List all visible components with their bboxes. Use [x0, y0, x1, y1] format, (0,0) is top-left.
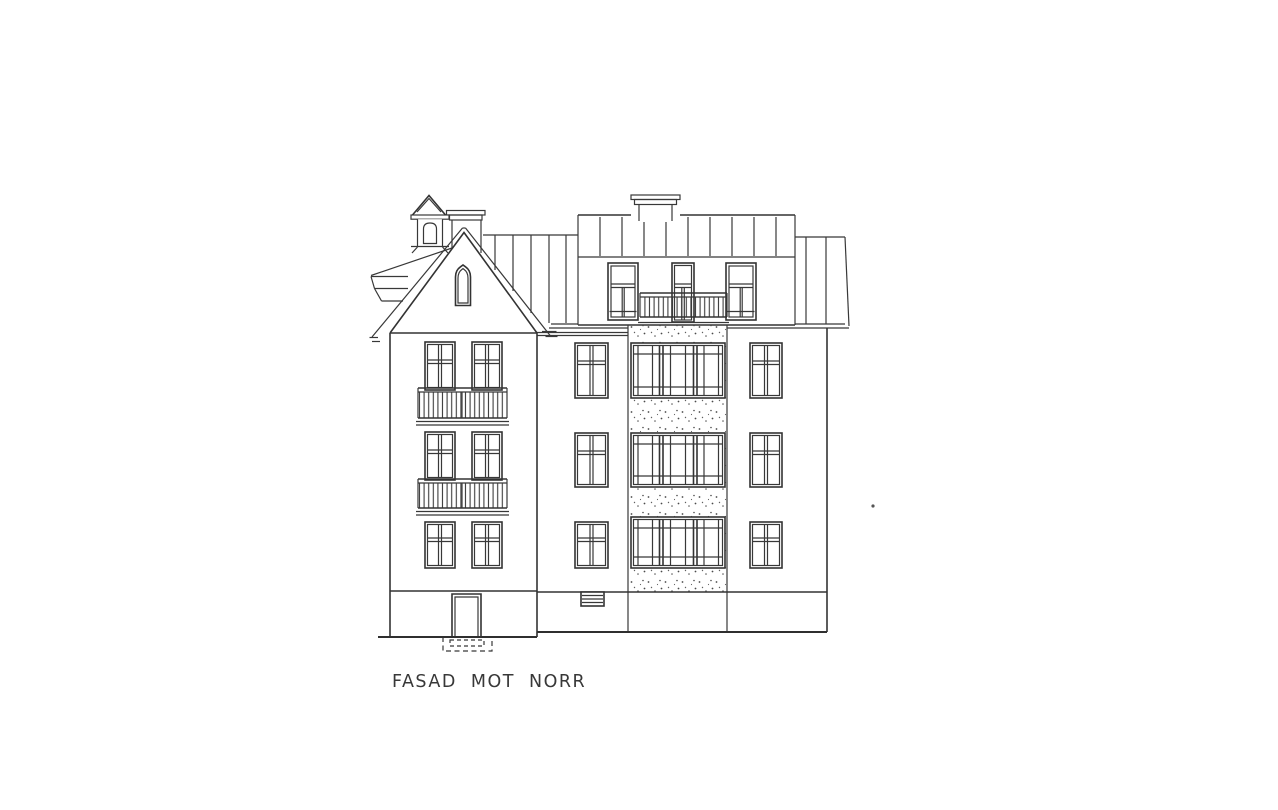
drawing-caption: FASAD MOT NORR [392, 672, 586, 692]
scan-speck [871, 504, 874, 507]
right-column-windows [750, 343, 782, 568]
roof-lantern-tower [411, 196, 449, 254]
basement-entry-steps [443, 637, 492, 651]
bay-triple-window-floor1 [631, 343, 725, 398]
bay-triple-window-floor2 [631, 433, 725, 487]
basement [390, 591, 827, 651]
bay-triple-window-floor3 [631, 517, 725, 568]
basement-door [452, 594, 481, 637]
scanned-architectural-drawing-page: FASAD MOT NORR [0, 0, 1278, 810]
dormer-window-left [608, 263, 638, 320]
dormer-window-right [726, 263, 756, 320]
basement-window [581, 592, 604, 606]
left-wing [370, 228, 558, 637]
mid-column-windows [575, 343, 608, 568]
facade-elevation-drawing: FASAD MOT NORR [0, 0, 1278, 810]
dormer-chimney [631, 195, 680, 222]
